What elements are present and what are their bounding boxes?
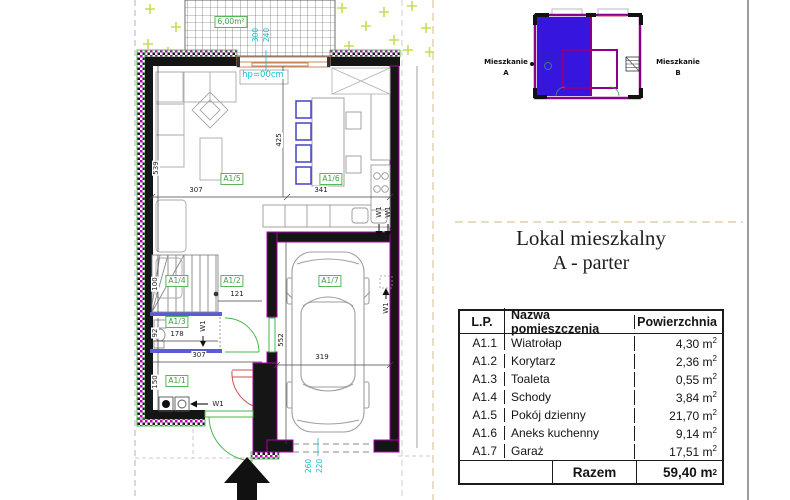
terrace-door-height: 240	[263, 28, 271, 42]
sheet-title-line1: Lokal mieszkalny	[452, 226, 730, 251]
vent-label-kitchen-2: W1	[384, 206, 392, 217]
dim-living-width: 307	[188, 186, 203, 194]
room-tag-a1-5: A1/5	[220, 173, 243, 185]
dim-vestibule-height: 150	[151, 374, 159, 389]
entrance-arrow	[224, 457, 270, 500]
room-tag-a1-6: A1/6	[319, 173, 342, 185]
vent-label-garage: W1	[382, 302, 390, 313]
terrace	[185, 0, 335, 56]
header-area: Powierzchnia	[634, 315, 722, 329]
room-tag-a1-4: A1/4	[165, 275, 188, 287]
mini-plan	[530, 9, 643, 99]
floor-plan-sheet: 6,00m² 300 240 hp=00cm A1/5 A1/6 A1/4 A1…	[0, 0, 790, 500]
hp-level-label: hp=00cm	[241, 71, 285, 79]
garage-door-height: 220	[316, 459, 324, 473]
vent-label-kitchen-1: W1	[375, 206, 383, 217]
vent-label-vestibule: W1	[212, 400, 223, 408]
total-value: 59,40 m2	[636, 461, 722, 483]
room-tag-a1-2: A1/2	[220, 275, 243, 287]
sheet-title-line2: A - parter	[452, 251, 730, 275]
total-label: Razem	[552, 461, 636, 483]
dim-corridor-width: 121	[229, 290, 244, 298]
dim-garage-height: 552	[277, 332, 285, 347]
apartment-b-letter: B	[675, 69, 680, 77]
table-row: A1.1 Wiatrołap 4,30 m2	[460, 334, 722, 352]
header-name: Nazwa pomieszczenia	[504, 308, 634, 336]
dim-hall-width: 307	[191, 351, 206, 359]
dim-kitchen-height: 425	[275, 132, 283, 147]
table-row: A1.7 Garaż 17,51 m2	[460, 442, 722, 460]
terrace-door-width: 300	[252, 28, 260, 42]
table-row: A1.2 Korytarz 2,36 m2	[460, 352, 722, 370]
room-tag-a1-3: A1/3	[165, 316, 188, 328]
table-header-row: L.P. Nazwa pomieszczenia Powierzchnia	[460, 311, 722, 334]
header-lp: L.P.	[460, 315, 504, 329]
dim-toilet-height: 92	[151, 328, 159, 339]
dim-kitchen-width: 341	[313, 186, 328, 194]
dim-garage-width: 319	[314, 353, 329, 361]
washer-symbols	[159, 397, 208, 411]
room-tag-a1-7: A1/7	[318, 275, 341, 287]
table-row: A1.3 Toaleta 0,55 m2	[460, 370, 722, 388]
vent-label-toilet: W1	[199, 320, 207, 331]
table-total-row: Razem 59,40 m2	[460, 460, 722, 483]
apartment-a-letter: A	[503, 69, 508, 77]
table-row: A1.4 Schody 3,84 m2	[460, 388, 722, 406]
terrace-area-label: 6,00m²	[214, 16, 247, 28]
room-area-table: L.P. Nazwa pomieszczenia Powierzchnia A1…	[458, 309, 724, 485]
table-row: A1.5 Pokój dzienny 21,70 m2	[460, 406, 722, 424]
sheet-title: Lokal mieszkalny A - parter	[452, 226, 730, 275]
dim-living-height: 539	[152, 160, 160, 175]
dim-toilet-width: 178	[169, 330, 184, 338]
apartment-b-label: Mieszkanie	[656, 58, 700, 66]
apartment-a-label: Mieszkanie	[484, 58, 528, 66]
room-tag-a1-1: A1/1	[165, 375, 188, 387]
table-body: A1.1 Wiatrołap 4,30 m2 A1.2 Korytarz 2,3…	[460, 334, 722, 460]
table-row: A1.6 Aneks kuchenny 9,14 m2	[460, 424, 722, 442]
garage-door-width: 260	[305, 459, 313, 473]
dim-stairs-height: 100	[151, 276, 159, 291]
